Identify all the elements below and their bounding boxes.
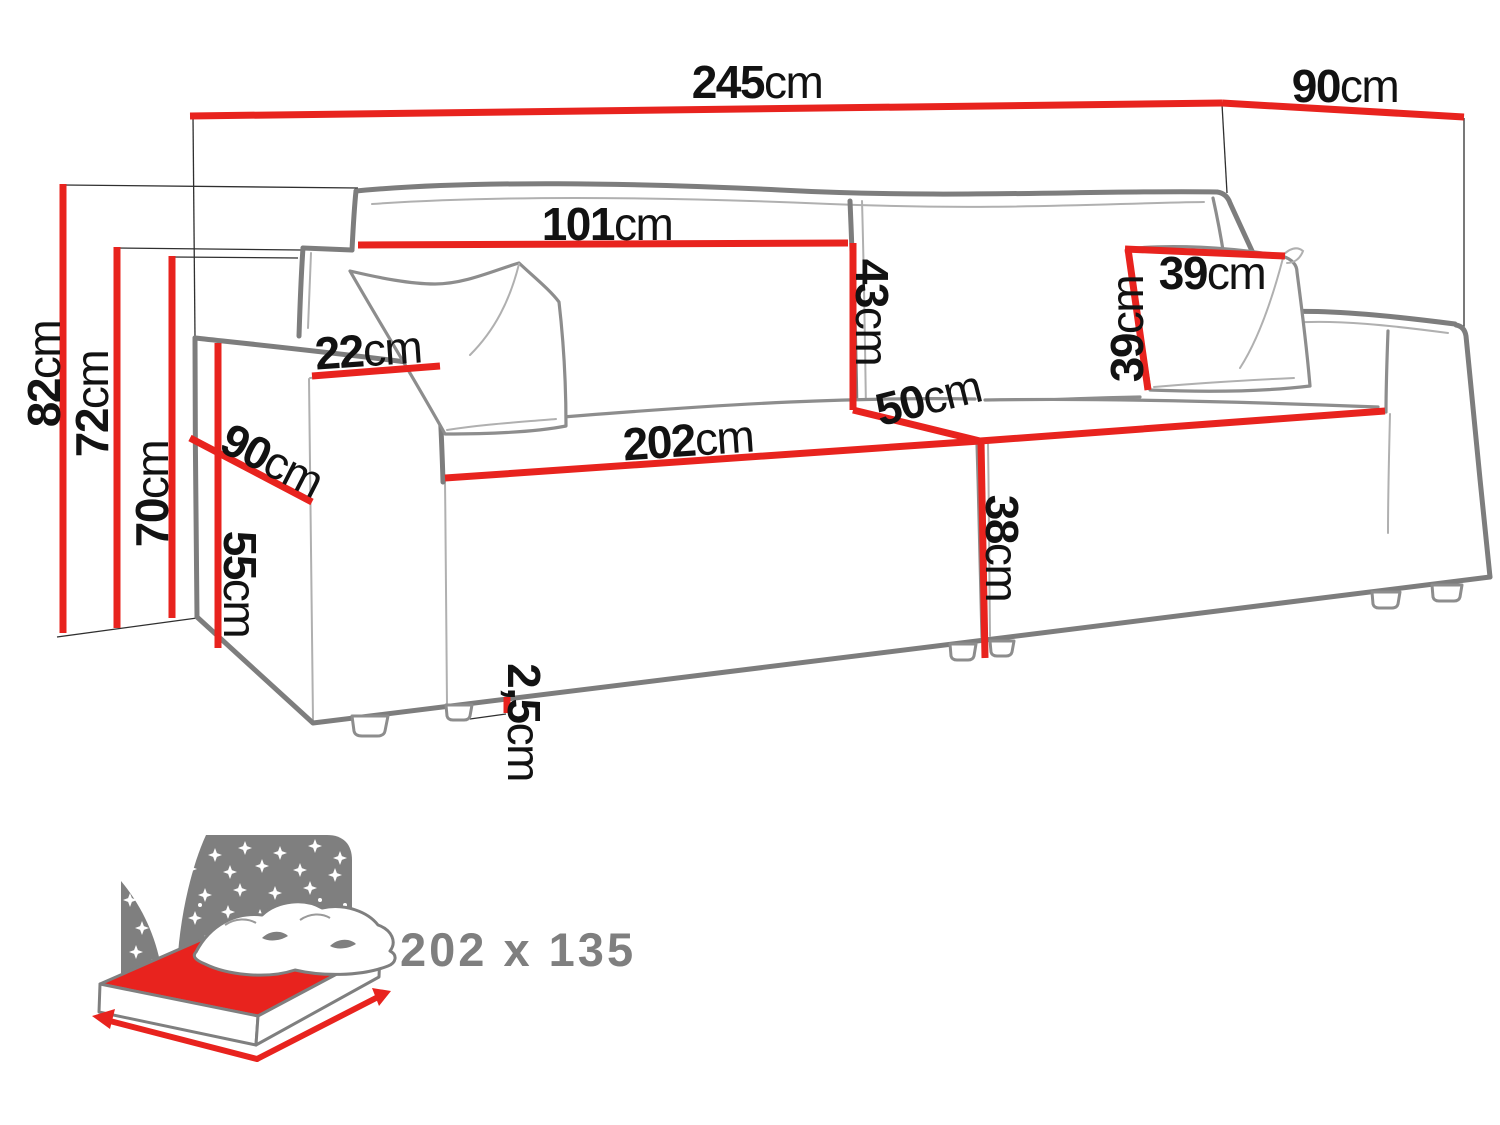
label-seat-front-height: 38cm [976, 495, 1028, 602]
label-backrest-width: 101cm [542, 198, 673, 250]
label-seat-width: 202cm [621, 410, 755, 471]
label-back-cushion-height: 43cm [846, 259, 898, 366]
label-pillow-height: 39cm [1101, 276, 1153, 383]
label-armrest-width: 22cm [313, 320, 423, 379]
label-backrest-height: 72cm [66, 351, 118, 458]
label-total-depth: 90cm [1292, 60, 1399, 112]
sleeping-area-size: 202 x 135 [400, 923, 636, 976]
sleeping-area-icon: 202 x 135 [92, 835, 636, 1059]
label-pillow-width: 39cm [1159, 247, 1266, 299]
sofa-drawing [195, 184, 1490, 736]
diagram-canvas: 245cm 90cm 101cm 82cm 72cm 70cm 55cm 22c… [0, 0, 1500, 1125]
sofa-dimension-diagram: 245cm 90cm 101cm 82cm 72cm 70cm 55cm 22c… [0, 0, 1500, 1125]
label-armrest-height: 55cm [214, 531, 266, 638]
label-total-height: 82cm [18, 321, 70, 428]
label-total-width: 245cm [692, 56, 823, 108]
label-back-height: 70cm [126, 441, 178, 548]
label-leg-height: 2,5cm [498, 663, 550, 781]
